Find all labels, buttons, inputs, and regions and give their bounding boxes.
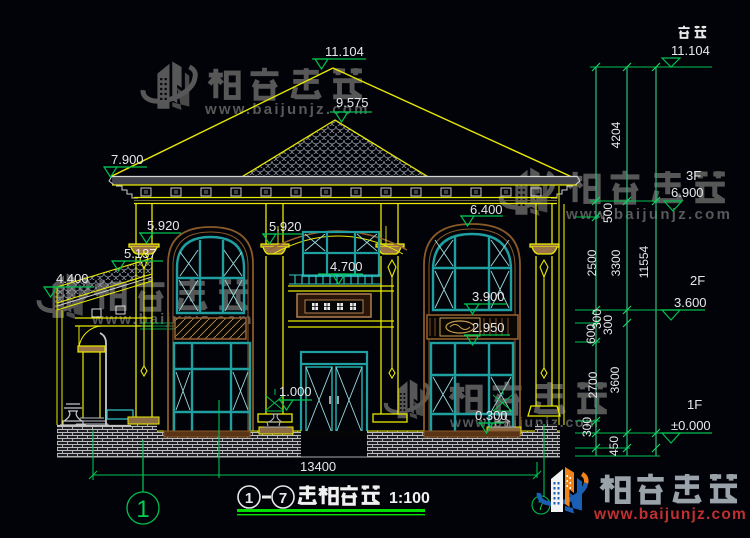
svg-text:3600: 3600 bbox=[608, 366, 622, 393]
svg-text:5.137: 5.137 bbox=[124, 246, 157, 261]
svg-text:0.300: 0.300 bbox=[475, 408, 508, 423]
svg-text:7: 7 bbox=[279, 490, 287, 507]
svg-text:13400: 13400 bbox=[300, 459, 336, 474]
svg-text:2F: 2F bbox=[690, 273, 705, 288]
svg-text:5.920: 5.920 bbox=[147, 218, 180, 233]
svg-text:www.baijunjz.com: www.baijunjz.com bbox=[565, 206, 732, 223]
svg-text:7.900: 7.900 bbox=[111, 152, 144, 167]
svg-text:2500: 2500 bbox=[585, 249, 599, 276]
svg-text:1:100: 1:100 bbox=[389, 490, 430, 507]
svg-text:1: 1 bbox=[245, 490, 253, 507]
svg-text:3F: 3F bbox=[686, 168, 701, 183]
svg-text:2700: 2700 bbox=[586, 371, 600, 398]
svg-text:4.400: 4.400 bbox=[56, 271, 89, 286]
svg-text:3.600: 3.600 bbox=[674, 295, 707, 310]
svg-text:1F: 1F bbox=[687, 397, 702, 412]
svg-text:3.900: 3.900 bbox=[472, 289, 505, 304]
svg-text:4.700: 4.700 bbox=[330, 259, 363, 274]
svg-text:6.400: 6.400 bbox=[470, 202, 503, 217]
svg-text:9.575: 9.575 bbox=[336, 95, 369, 110]
svg-text:11554: 11554 bbox=[637, 245, 651, 278]
svg-text:www.baijunjz.com: www.baijunjz.com bbox=[449, 414, 600, 430]
svg-text:5.920: 5.920 bbox=[269, 219, 302, 234]
svg-text:www.baijunjz.com: www.baijunjz.com bbox=[593, 506, 747, 523]
svg-text:6.900: 6.900 bbox=[671, 185, 704, 200]
svg-text:500: 500 bbox=[601, 203, 615, 223]
svg-text:450: 450 bbox=[607, 436, 621, 456]
svg-text:1: 1 bbox=[136, 496, 149, 523]
svg-text:3300: 3300 bbox=[609, 249, 623, 276]
svg-text:2.950: 2.950 bbox=[472, 320, 505, 335]
svg-text:600: 600 bbox=[584, 324, 598, 344]
svg-text:±0.000: ±0.000 bbox=[671, 418, 711, 433]
svg-text:300: 300 bbox=[580, 417, 594, 437]
svg-text:1.000: 1.000 bbox=[279, 384, 312, 399]
svg-text:11.104: 11.104 bbox=[671, 43, 710, 58]
svg-text:11.104: 11.104 bbox=[325, 44, 364, 59]
svg-text:300: 300 bbox=[601, 315, 615, 335]
svg-text:4204: 4204 bbox=[609, 121, 623, 148]
